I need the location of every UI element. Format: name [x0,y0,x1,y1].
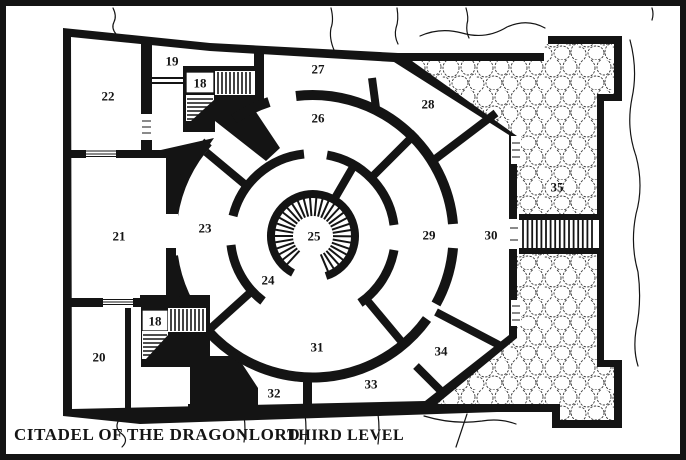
room-label-19: 19 [166,54,180,69]
map-level-label: THIRD LEVEL [287,427,404,444]
room-label-27: 27 [312,62,326,77]
room-label-26: 26 [312,111,326,126]
room-label-24: 24 [262,273,276,288]
room-label-31: 31 [311,340,324,355]
room-label-30: 30 [485,228,498,243]
room-label-33: 33 [365,377,379,392]
room-label-25: 25 [308,229,322,244]
room-label-23: 23 [199,221,213,236]
map-title: CITADEL OF THE DRAGONLORD [14,425,300,444]
room-label-20: 20 [93,350,106,365]
map-page: 18192221201823242526272829303132333435 C… [0,0,686,460]
room-label-22: 22 [102,89,115,104]
staircase-east [519,214,599,254]
room-label-18: 18 [149,314,163,329]
room-label-32: 32 [268,386,281,401]
room-label-21: 21 [113,229,126,244]
room-label-29: 29 [423,228,437,243]
room-label-35: 35 [551,180,565,195]
room-label-28: 28 [422,97,436,112]
floorplan-map: 18192221201823242526272829303132333435 C… [0,0,686,460]
room-label-18: 18 [194,76,208,91]
room-label-34: 34 [435,344,449,359]
